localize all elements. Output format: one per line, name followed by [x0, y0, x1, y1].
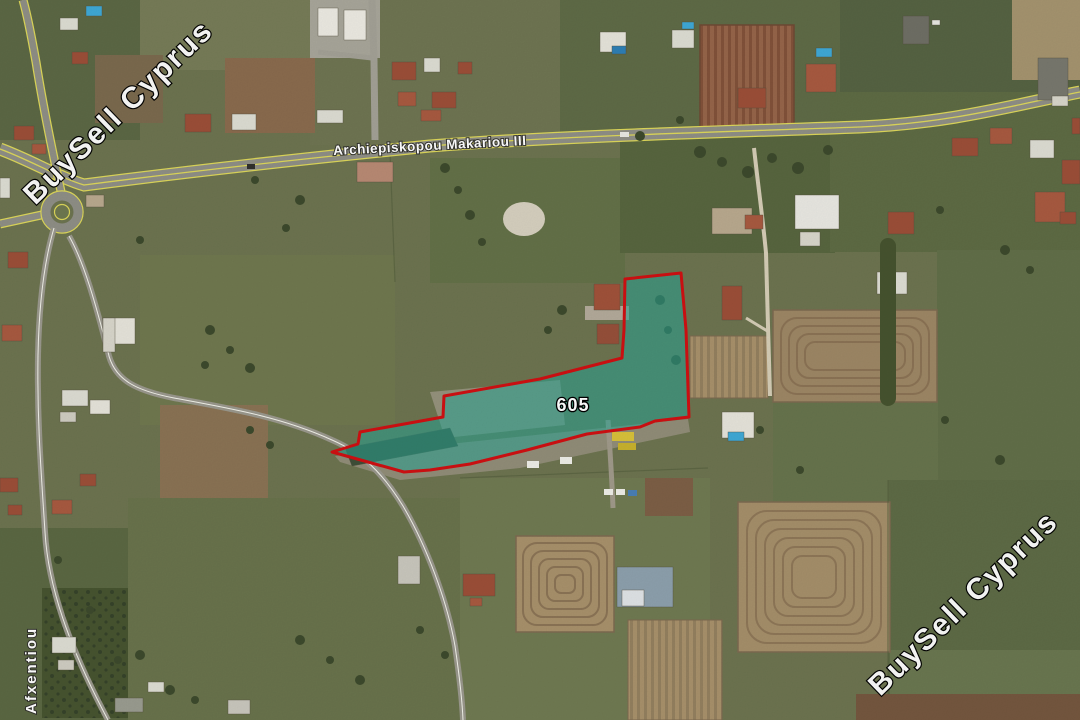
grain-overlay	[0, 0, 1080, 720]
map-viewport: 605 Archiepiskopou Makariou III Afxentio…	[0, 0, 1080, 720]
map-canvas[interactable]: 605 Archiepiskopou Makariou III Afxentio…	[0, 0, 1080, 720]
